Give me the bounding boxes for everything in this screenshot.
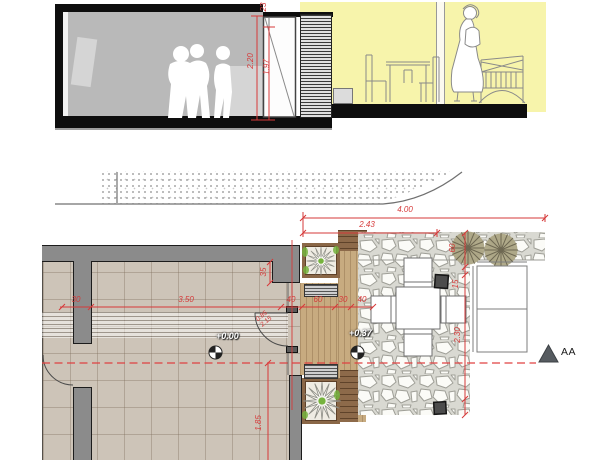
terrace-ground-slab	[332, 104, 527, 118]
dim-v-60: 60	[448, 239, 458, 257]
stone-paving	[358, 232, 545, 415]
interior-floor-slab	[55, 116, 332, 128]
section-marker-label: AA	[561, 346, 576, 358]
dim-terrace-width: 2.43	[352, 220, 382, 230]
left-pier-lower	[73, 387, 92, 460]
floor-slab-underline	[55, 128, 332, 130]
louver-shutter-section	[300, 14, 332, 118]
left-wall-section	[55, 4, 63, 128]
level-interior: +0.00	[216, 331, 239, 341]
wall-return-pier	[272, 261, 300, 283]
spotlight-square	[434, 402, 447, 415]
architectural-drawing: 23 2.20 1.97 4.00 2.43 30 3.50 40 60 30 …	[0, 0, 600, 460]
dim-chain-40b: 40	[350, 295, 374, 305]
plan-table-chairs	[371, 258, 466, 356]
terrace-step-block	[333, 88, 353, 104]
spotlight-square	[435, 275, 449, 289]
planter-bottom	[302, 378, 340, 424]
dim-chain-40a: 40	[279, 295, 303, 305]
dim-chain-60: 60	[306, 295, 330, 305]
louver-panel-lower-plan	[304, 364, 338, 379]
section-view	[0, 0, 600, 140]
dim-chain-30a: 30	[64, 295, 88, 305]
porch-column	[436, 2, 445, 104]
plan-top-wall	[42, 245, 300, 262]
right-pier-lower	[289, 375, 302, 460]
fan-plant	[484, 233, 518, 267]
dim-total-width: 4.00	[390, 205, 420, 215]
section-marker-triangle	[539, 345, 558, 362]
level-terrace: +0.37	[349, 328, 372, 338]
dim-door-height: 1.97	[262, 54, 272, 80]
dim-opening-height: 2.20	[246, 48, 256, 74]
deck-step-bottom	[340, 370, 358, 422]
door-jamb-lower	[286, 346, 298, 353]
dim-chain-350: 3.50	[168, 295, 204, 305]
dim-wall-return: 35	[259, 263, 269, 281]
plan-sofa	[473, 262, 527, 352]
door-jamb-upper	[286, 306, 298, 313]
dim-transom: 23	[259, 0, 269, 15]
wall-highlight	[226, 66, 262, 116]
ceiling-slab	[62, 4, 263, 12]
planter-top	[302, 243, 340, 278]
dim-v-230: 2.30	[453, 322, 463, 348]
dim-v-15: 15	[451, 276, 461, 292]
deck-step-top	[338, 230, 367, 251]
dim-room-depth: 1.85	[254, 410, 264, 436]
road-stipple-band	[100, 171, 450, 204]
